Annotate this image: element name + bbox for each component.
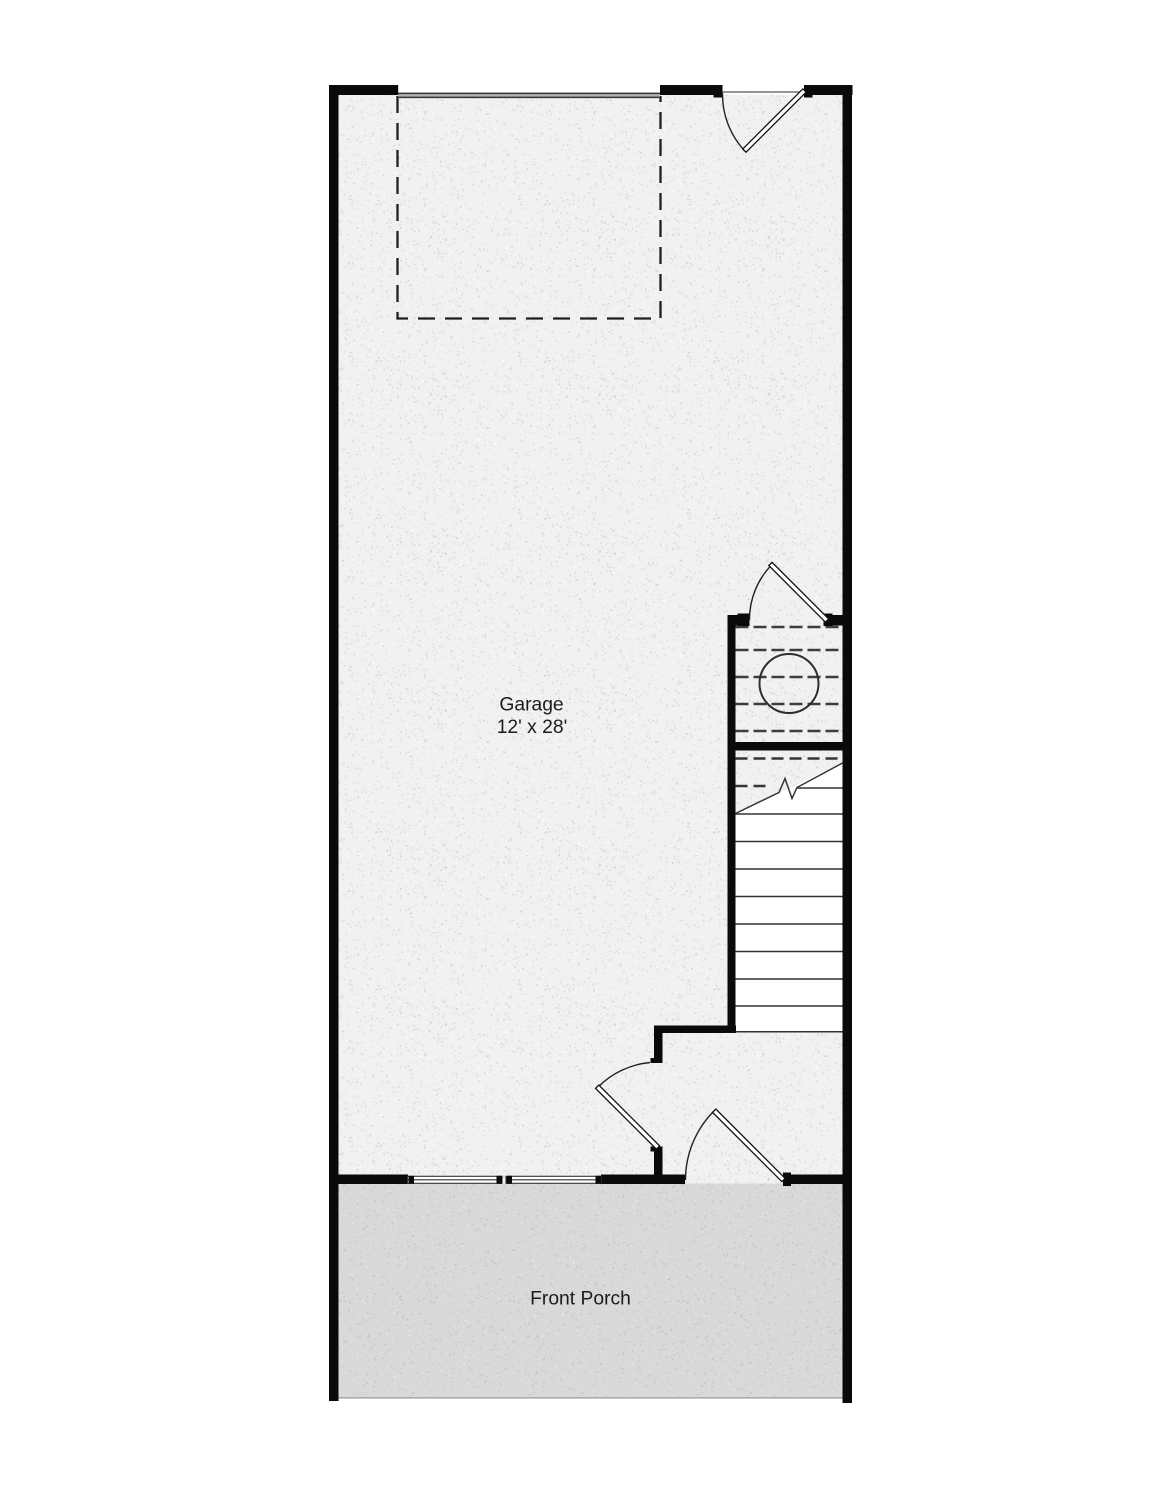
- svg-text:Front Porch: Front Porch: [530, 1289, 631, 1310]
- svg-text:12' x 28': 12' x 28': [497, 717, 568, 738]
- svg-text:Garage: Garage: [499, 695, 563, 716]
